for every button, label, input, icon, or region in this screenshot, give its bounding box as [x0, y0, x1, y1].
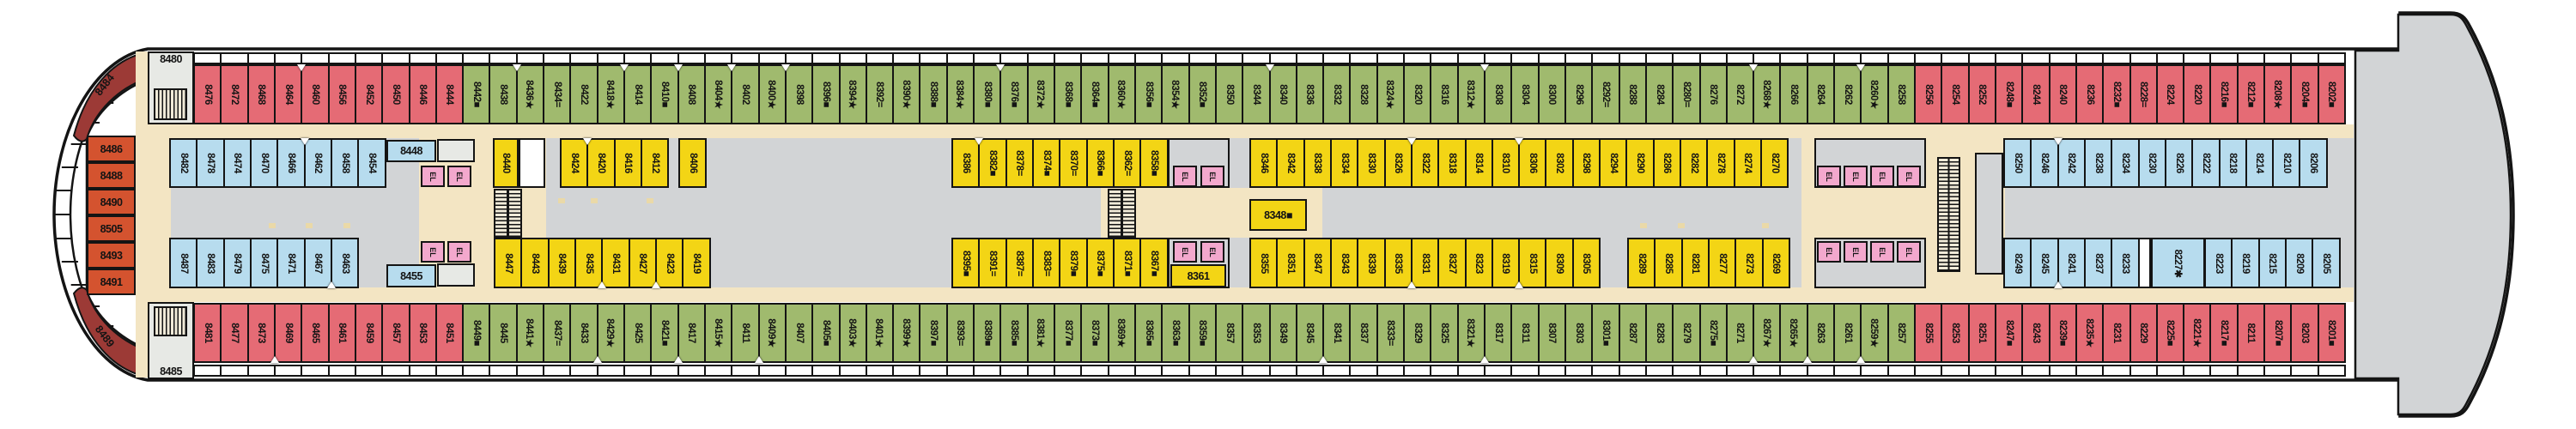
- cabin-8380[interactable]: 8380■: [973, 64, 1001, 124]
- cabin-8361[interactable]: 8361: [1170, 264, 1226, 287]
- cabin-8266[interactable]: 8266: [1779, 64, 1807, 124]
- cabin-8254[interactable]: 8254: [1941, 64, 1969, 124]
- cabin-8439[interactable]: 8439: [548, 238, 576, 288]
- cabin-8268[interactable]: 8268★: [1753, 64, 1781, 124]
- cabin-8217[interactable]: 8217■: [2209, 303, 2238, 363]
- cabin-8457[interactable]: 8457: [381, 303, 410, 363]
- cabin-8289[interactable]: 8289: [1627, 238, 1656, 288]
- cabin-8455[interactable]: 8455: [386, 264, 436, 287]
- cabin-8280[interactable]: 8280=: [1672, 64, 1700, 124]
- cabin-8344[interactable]: 8344: [1242, 64, 1270, 124]
- cabin-8329[interactable]: 8329: [1403, 303, 1431, 363]
- cabin-8381[interactable]: 8381★: [1027, 303, 1055, 363]
- cabin-8368[interactable]: 8368■: [1054, 64, 1082, 124]
- cabin-8387[interactable]: 8387=: [1005, 238, 1034, 288]
- cabin-8257[interactable]: 8257: [1887, 303, 1916, 363]
- cabin-8462[interactable]: 8462: [304, 138, 332, 188]
- cabin-8400[interactable]: 8400★: [758, 64, 787, 124]
- cabin-8405[interactable]: 8405■: [811, 303, 840, 363]
- cabin-8333[interactable]: 8333=: [1376, 303, 1405, 363]
- cabin-8474[interactable]: 8474: [223, 138, 252, 188]
- cabin-8259[interactable]: 8259★: [1860, 303, 1888, 363]
- cabin-label: 8248■: [2004, 82, 2014, 107]
- cabin-8317[interactable]: 8317: [1484, 303, 1512, 363]
- cabin-8411[interactable]: 8411: [731, 303, 759, 363]
- cabin-8323[interactable]: 8323: [1465, 238, 1493, 288]
- cabin-8358[interactable]: 8358■: [1139, 138, 1168, 188]
- connecting-rooms-icon: [1803, 356, 1812, 363]
- cabin-8458[interactable]: 8458: [331, 138, 359, 188]
- cabin-label: 8490: [88, 196, 134, 208]
- cabin-8212[interactable]: 8212■: [2237, 64, 2265, 124]
- cabin-8454[interactable]: 8454: [357, 138, 386, 188]
- cabin-8354[interactable]: 8354★: [1161, 64, 1189, 124]
- cabin-8332[interactable]: 8332: [1322, 64, 1351, 124]
- cabin-8488[interactable]: 8488: [87, 162, 136, 189]
- cabin-label: 8468: [256, 84, 266, 105]
- cabin-8242[interactable]: 8242: [2057, 138, 2086, 188]
- cabin-8311[interactable]: 8311: [1510, 303, 1539, 363]
- cabin-8414[interactable]: 8414: [623, 64, 652, 124]
- cabin-8472[interactable]: 8472: [220, 64, 248, 124]
- cabin-8204[interactable]: 8204■: [2290, 64, 2318, 124]
- cabin-8442[interactable]: 8442■: [462, 64, 490, 124]
- cabin-8277[interactable]: 8277: [1708, 238, 1736, 288]
- cabin-8209[interactable]: 8209: [2285, 238, 2313, 288]
- cabin-8288[interactable]: 8288: [1619, 64, 1647, 124]
- cabin-8294[interactable]: 8294: [1599, 138, 1627, 188]
- cabin-8357[interactable]: 8357: [1215, 303, 1243, 363]
- cabin-8337[interactable]: 8337: [1349, 303, 1377, 363]
- cabin-8402[interactable]: 8402: [731, 64, 759, 124]
- cabin-8321[interactable]: 8321★: [1457, 303, 1485, 363]
- cabin-8216[interactable]: 8216■: [2209, 64, 2238, 124]
- cabin-8366[interactable]: 8366■: [1086, 138, 1115, 188]
- cabin-8302[interactable]: 8302: [1545, 138, 1573, 188]
- cabin-8224[interactable]: 8224: [2156, 64, 2184, 124]
- cabin-8275[interactable]: 8275■: [1699, 303, 1728, 363]
- cabin-8261[interactable]: 8261: [1833, 303, 1862, 363]
- cabin-8466[interactable]: 8466: [276, 138, 305, 188]
- cabin-8456[interactable]: 8456: [328, 64, 356, 124]
- cabin-8226[interactable]: 8226: [2165, 138, 2193, 188]
- cabin-8453[interactable]: 8453: [409, 303, 437, 363]
- balcony-cell: [650, 52, 678, 64]
- balcony-cell: [1349, 365, 1377, 377]
- cabin-8445[interactable]: 8445: [489, 303, 517, 363]
- cabin-8409[interactable]: 8409★: [758, 303, 787, 363]
- cabin-8214[interactable]: 8214: [2245, 138, 2274, 188]
- cabin-8341[interactable]: 8341: [1322, 303, 1351, 363]
- cabin-8367[interactable]: 8367■: [1139, 238, 1168, 288]
- cabin-8318[interactable]: 8318: [1437, 138, 1466, 188]
- cabin-8243[interactable]: 8243: [2021, 303, 2050, 363]
- cabin-8386[interactable]: 8386: [951, 138, 980, 188]
- cabin-8471[interactable]: 8471: [276, 238, 305, 288]
- cabin-8298[interactable]: 8298: [1572, 138, 1601, 188]
- cabin-8351[interactable]: 8351: [1276, 238, 1304, 288]
- cabin-8352[interactable]: 8352■: [1188, 64, 1217, 124]
- cabin-8305[interactable]: 8305: [1572, 238, 1601, 288]
- balcony-cell: [193, 52, 222, 64]
- cabin-8424[interactable]: 8424: [560, 138, 588, 188]
- cabin-8441[interactable]: 8441★: [516, 303, 544, 363]
- cabin-8314[interactable]: 8314: [1465, 138, 1493, 188]
- cabin-8234[interactable]: 8234: [2111, 138, 2139, 188]
- cabin-8420[interactable]: 8420: [586, 138, 615, 188]
- cabin-8356[interactable]: 8356■: [1134, 64, 1163, 124]
- balcony-cell: [1027, 52, 1055, 64]
- cabin-8389[interactable]: 8389■: [973, 303, 1001, 363]
- cabin-8476[interactable]: 8476: [193, 64, 222, 124]
- cabin-8379[interactable]: 8379■: [1059, 238, 1087, 288]
- cabin-8283[interactable]: 8283: [1645, 303, 1674, 363]
- cabin-8395[interactable]: 8395■: [951, 238, 980, 288]
- balcony-cell: [946, 365, 975, 377]
- cabin-label: 8325: [1439, 323, 1449, 343]
- cabin-8228[interactable]: 8228=: [2129, 64, 2158, 124]
- cabin-8285[interactable]: 8285: [1654, 238, 1682, 288]
- cabin-8401[interactable]: 8401★: [866, 303, 894, 363]
- cabin-8325[interactable]: 8325: [1430, 303, 1458, 363]
- cabin-8284[interactable]: 8284: [1645, 64, 1674, 124]
- cabin-8345[interactable]: 8345: [1296, 303, 1324, 363]
- cabin-8384[interactable]: 8384★: [946, 64, 975, 124]
- cabin-8269[interactable]: 8269: [1762, 238, 1790, 288]
- cabin-8327[interactable]: 8327: [1437, 238, 1466, 288]
- cabin-8330[interactable]: 8330: [1357, 138, 1385, 188]
- cabin-8473[interactable]: 8473: [247, 303, 276, 363]
- cabin-8404[interactable]: 8404★: [704, 64, 732, 124]
- cabin-8233[interactable]: 8233: [2111, 238, 2139, 288]
- cabin-8370[interactable]: 8370=: [1059, 138, 1087, 188]
- cabin-8334[interactable]: 8334: [1330, 138, 1358, 188]
- cabin-8338[interactable]: 8338: [1303, 138, 1332, 188]
- cabin-8416[interactable]: 8416: [614, 138, 642, 188]
- cabin-8359[interactable]: 8359■: [1188, 303, 1217, 363]
- cabin-8365[interactable]: 8365■: [1134, 303, 1163, 363]
- cabin-8201[interactable]: 8201■: [2318, 303, 2346, 363]
- cabin-8373[interactable]: 8373■: [1080, 303, 1109, 363]
- cabin-8459[interactable]: 8459: [355, 303, 383, 363]
- stern-deck: [2355, 15, 2511, 414]
- cabin-8362[interactable]: 8362=: [1113, 138, 1141, 188]
- cabin-label: 8352■: [1197, 82, 1207, 107]
- cabin-8250[interactable]: 8250: [2003, 138, 2032, 188]
- cabin-8264[interactable]: 8264: [1807, 64, 1835, 124]
- cabin-8437[interactable]: 8437=: [543, 303, 571, 363]
- cabin-8207[interactable]: 8207■: [2263, 303, 2292, 363]
- cabin-8231[interactable]: 8231: [2102, 303, 2130, 363]
- cabin-8412[interactable]: 8412: [641, 138, 669, 188]
- cabin-8390[interactable]: 8390★: [892, 64, 920, 124]
- cabin-8279[interactable]: 8279: [1672, 303, 1700, 363]
- balcony-cell: [1403, 365, 1431, 377]
- cabin-8460[interactable]: 8460: [301, 64, 329, 124]
- cabin-label: 8482: [179, 153, 189, 173]
- cabin-8218[interactable]: 8218: [2219, 138, 2247, 188]
- cabin-8252[interactable]: 8252: [1968, 64, 1996, 124]
- cabin-8355[interactable]: 8355: [1249, 238, 1278, 288]
- cabin-8336[interactable]: 8336: [1296, 64, 1324, 124]
- cabin-8241[interactable]: 8241: [2057, 238, 2086, 288]
- cabin-8461[interactable]: 8461: [328, 303, 356, 363]
- cabin-8349[interactable]: 8349: [1269, 303, 1297, 363]
- cabin-8265[interactable]: 8265★: [1779, 303, 1807, 363]
- cabin-8273[interactable]: 8273: [1735, 238, 1763, 288]
- cabin-8290[interactable]: 8290: [1625, 138, 1654, 188]
- cabin-8482[interactable]: 8482: [169, 138, 197, 188]
- cabin-8353[interactable]: 8353: [1242, 303, 1270, 363]
- cabin-8487[interactable]: 8487: [169, 238, 197, 288]
- cabin-8464[interactable]: 8464: [274, 64, 302, 124]
- cabin-8235[interactable]: 8235★: [2075, 303, 2104, 363]
- cabin-8475[interactable]: 8475: [250, 238, 278, 288]
- cabin-8468[interactable]: 8468: [247, 64, 276, 124]
- cabin-8419[interactable]: 8419: [682, 238, 710, 288]
- cabin-8287[interactable]: 8287: [1619, 303, 1647, 363]
- cabin-8205[interactable]: 8205: [2312, 238, 2340, 288]
- cabin-8382[interactable]: 8382■: [978, 138, 1006, 188]
- cabin-8202[interactable]: 8202■: [2318, 64, 2346, 124]
- cabin-8247[interactable]: 8247■: [1995, 303, 2023, 363]
- cabin-8399[interactable]: 8399★: [892, 303, 920, 363]
- cabin-8303[interactable]: 8303: [1564, 303, 1593, 363]
- cabin-8505[interactable]: 8505: [87, 215, 136, 242]
- cabin-8383[interactable]: 8383=: [1032, 238, 1060, 288]
- balcony-cell: [1108, 365, 1136, 377]
- cabin-8292[interactable]: 8292=: [1591, 64, 1619, 124]
- cabin-8451[interactable]: 8451: [435, 303, 464, 363]
- cabin-8369[interactable]: 8369★: [1108, 303, 1136, 363]
- cabin-8206[interactable]: 8206: [2299, 138, 2327, 188]
- cabin-8300[interactable]: 8300: [1538, 64, 1566, 124]
- cabin-8465[interactable]: 8465: [301, 303, 329, 363]
- cabin-8267[interactable]: 8267★: [1753, 303, 1781, 363]
- cabin-8222[interactable]: 8222: [2191, 138, 2220, 188]
- cabin-8253[interactable]: 8253: [1941, 303, 1969, 363]
- cabin-8486[interactable]: 8486: [87, 136, 136, 162]
- cabin-8220[interactable]: 8220: [2183, 64, 2211, 124]
- cabin-8320[interactable]: 8320: [1403, 64, 1431, 124]
- cabin-8452[interactable]: 8452: [355, 64, 383, 124]
- cabin-8372[interactable]: 8372★: [1027, 64, 1055, 124]
- cabin-8423[interactable]: 8423: [655, 238, 683, 288]
- cabin-8219[interactable]: 8219: [2231, 238, 2259, 288]
- cabin-8443[interactable]: 8443: [520, 238, 549, 288]
- cabin-8347[interactable]: 8347: [1303, 238, 1332, 288]
- cabin-8396[interactable]: 8396■: [811, 64, 840, 124]
- cabin-8324[interactable]: 8324★: [1376, 64, 1405, 124]
- elevator-label: EL: [1851, 172, 1860, 182]
- cabin-8470[interactable]: 8470: [250, 138, 278, 188]
- cabin-8281[interactable]: 8281: [1681, 238, 1710, 288]
- cabin-8340[interactable]: 8340: [1269, 64, 1297, 124]
- cabin-8374[interactable]: 8374■: [1032, 138, 1060, 188]
- cabin-8307[interactable]: 8307: [1538, 303, 1566, 363]
- cabin-8262[interactable]: 8262: [1833, 64, 1862, 124]
- cabin-8322[interactable]: 8322: [1411, 138, 1439, 188]
- cabin-8425[interactable]: 8425: [623, 303, 652, 363]
- pillar-dot: [647, 198, 653, 203]
- cabin-8238[interactable]: 8238: [2084, 138, 2112, 188]
- cabin-8385[interactable]: 8385■: [999, 303, 1028, 363]
- cabin-8237[interactable]: 8237: [2084, 238, 2112, 288]
- cabin-8438[interactable]: 8438: [489, 64, 517, 124]
- cabin-8406[interactable]: 8406: [678, 138, 707, 188]
- cabin-8223[interactable]: 8223: [2204, 238, 2233, 288]
- cabin-label: 8444: [444, 84, 454, 105]
- cabin-8490[interactable]: 8490: [87, 189, 136, 215]
- cabin-8316[interactable]: 8316: [1430, 64, 1458, 124]
- cabin-8398[interactable]: 8398: [785, 64, 813, 124]
- cabin-8260[interactable]: 8260★: [1860, 64, 1888, 124]
- cabin-8210[interactable]: 8210: [2272, 138, 2300, 188]
- cabin-8225[interactable]: 8225■: [2156, 303, 2184, 363]
- cabin-8418[interactable]: 8418★: [597, 64, 625, 124]
- cabin-8227[interactable]: 8227✱: [2151, 238, 2205, 288]
- cabin-8304[interactable]: 8304: [1510, 64, 1539, 124]
- cabin-8422[interactable]: 8422: [569, 64, 598, 124]
- cabin-8301[interactable]: 8301■: [1591, 303, 1619, 363]
- cabin-8248[interactable]: 8248■: [1995, 64, 2023, 124]
- cabin-8240[interactable]: 8240: [2049, 64, 2077, 124]
- cabin-8315[interactable]: 8315: [1518, 238, 1546, 288]
- cabin-8256[interactable]: 8256: [1914, 64, 1942, 124]
- cabin-8447[interactable]: 8447: [494, 238, 522, 288]
- cabin-8371[interactable]: 8371■: [1113, 238, 1141, 288]
- cabin-8364[interactable]: 8364■: [1080, 64, 1109, 124]
- cabin-8309[interactable]: 8309: [1545, 238, 1573, 288]
- cabin-8434[interactable]: 8434=: [543, 64, 571, 124]
- cabin-label: 8274: [1742, 153, 1753, 173]
- cabin-8477[interactable]: 8477: [220, 303, 248, 363]
- cabin-8436[interactable]: 8436★: [516, 64, 544, 124]
- cabin-8483[interactable]: 8483: [196, 238, 224, 288]
- cabin-8408[interactable]: 8408: [677, 64, 706, 124]
- cabin-8394[interactable]: 8394★: [839, 64, 867, 124]
- cabin-8440[interactable]: 8440: [493, 138, 519, 188]
- cabin-8272[interactable]: 8272: [1726, 64, 1754, 124]
- cabin-8448[interactable]: 8448: [386, 140, 436, 162]
- cabin-8446[interactable]: 8446: [409, 64, 437, 124]
- cabin-label: 8234: [2120, 153, 2130, 173]
- cabin-8286[interactable]: 8286: [1653, 138, 1681, 188]
- cabin-8246[interactable]: 8246: [2030, 138, 2058, 188]
- cabin-8377[interactable]: 8377■: [1054, 303, 1082, 363]
- cabin-8229[interactable]: 8229: [2129, 303, 2158, 363]
- cabin-8232[interactable]: 8232■: [2102, 64, 2130, 124]
- cabin-8255[interactable]: 8255: [1914, 303, 1942, 363]
- cabin-8429[interactable]: 8429★: [597, 303, 625, 363]
- cabin-8339[interactable]: 8339: [1357, 238, 1385, 288]
- cabin-8391[interactable]: 8391=: [978, 238, 1006, 288]
- cabin-8346[interactable]: 8346: [1249, 138, 1278, 188]
- cabin-8397[interactable]: 8397■: [919, 303, 947, 363]
- cabin-8478[interactable]: 8478: [196, 138, 224, 188]
- cabin-8308[interactable]: 8308: [1484, 64, 1512, 124]
- cabin-8343[interactable]: 8343: [1330, 238, 1358, 288]
- cabin-8469[interactable]: 8469: [274, 303, 302, 363]
- cabin-8360[interactable]: 8360★: [1108, 64, 1136, 124]
- connecting-rooms-icon: [1319, 356, 1327, 363]
- bow-corridor: [136, 124, 171, 302]
- cabin-8244[interactable]: 8244: [2021, 64, 2050, 124]
- cabin-label: 8461: [337, 323, 347, 343]
- cabin-8251[interactable]: 8251: [1968, 303, 1996, 363]
- cabin-8491[interactable]: 8491: [87, 269, 136, 295]
- cabin-8493[interactable]: 8493: [87, 242, 136, 269]
- cabin-8271[interactable]: 8271: [1726, 303, 1754, 363]
- cabin-8431[interactable]: 8431: [601, 238, 629, 288]
- cabin-8312[interactable]: 8312★: [1457, 64, 1485, 124]
- cabin-label: 8311: [1520, 323, 1530, 343]
- cabin-8221[interactable]: 8221★: [2183, 303, 2211, 363]
- cabin-label: 8438: [498, 84, 508, 105]
- cabin-8270[interactable]: 8270: [1760, 138, 1789, 188]
- cabin-8479[interactable]: 8479: [223, 238, 252, 288]
- cabin-8444[interactable]: 8444: [435, 64, 464, 124]
- cabin-label: 8374■: [1042, 150, 1052, 176]
- cabin-label: 8373■: [1090, 320, 1100, 346]
- cabin-8450[interactable]: 8450: [381, 64, 410, 124]
- cabin-8376[interactable]: 8376■: [999, 64, 1028, 124]
- cabin-8350[interactable]: 8350: [1215, 64, 1243, 124]
- cabin-8326[interactable]: 8326: [1384, 138, 1413, 188]
- cabin-label: 8283: [1655, 323, 1665, 343]
- cabin-8306[interactable]: 8306: [1518, 138, 1546, 188]
- cabin-8274[interactable]: 8274: [1734, 138, 1762, 188]
- cabin-8417[interactable]: 8417: [677, 303, 706, 363]
- cabin-8388[interactable]: 8388■: [919, 64, 947, 124]
- cabin-8433[interactable]: 8433: [569, 303, 598, 363]
- cabin-8203[interactable]: 8203: [2290, 303, 2318, 363]
- cabin-8393[interactable]: 8393=: [946, 303, 975, 363]
- cabin-8296[interactable]: 8296: [1564, 64, 1593, 124]
- cabin-8410[interactable]: 8410■: [650, 64, 678, 124]
- cabin-8258[interactable]: 8258: [1887, 64, 1916, 124]
- cabin-8375[interactable]: 8375■: [1086, 238, 1115, 288]
- cabin-8331[interactable]: 8331: [1411, 238, 1439, 288]
- cabin-8363[interactable]: 8363■: [1161, 303, 1189, 363]
- cabin-8407[interactable]: 8407: [785, 303, 813, 363]
- balcony-cell: [758, 365, 787, 377]
- cabin-8230[interactable]: 8230: [2138, 138, 2166, 188]
- cabin-8342[interactable]: 8342: [1276, 138, 1304, 188]
- cabin-8481[interactable]: 8481: [193, 303, 222, 363]
- cabin-8415[interactable]: 8415★: [704, 303, 732, 363]
- cabin-8449[interactable]: 8449■: [462, 303, 490, 363]
- cabin-8378[interactable]: 8378=: [1005, 138, 1034, 188]
- cabin-8239[interactable]: 8239■: [2049, 303, 2077, 363]
- cabin-8310[interactable]: 8310: [1492, 138, 1520, 188]
- cabin-8215[interactable]: 8215: [2258, 238, 2287, 288]
- cabin-8249[interactable]: 8249: [2003, 238, 2032, 288]
- cabin-8276[interactable]: 8276: [1699, 64, 1728, 124]
- cabin-8208[interactable]: 8208★: [2263, 64, 2292, 124]
- cabin-8236[interactable]: 8236: [2075, 64, 2104, 124]
- cabin-8463[interactable]: 8463: [331, 238, 359, 288]
- cabin-8328[interactable]: 8328: [1349, 64, 1377, 124]
- cabin-8263[interactable]: 8263: [1807, 303, 1835, 363]
- cabin-8282[interactable]: 8282: [1680, 138, 1708, 188]
- cabin-8421[interactable]: 8421■: [650, 303, 678, 363]
- cabin-8211[interactable]: 8211: [2237, 303, 2265, 363]
- cabin-8392[interactable]: 8392=: [866, 64, 894, 124]
- cabin-8403[interactable]: 8403★: [839, 303, 867, 363]
- cabin-8348[interactable]: 8348■: [1249, 199, 1307, 231]
- cabin-8278[interactable]: 8278: [1706, 138, 1735, 188]
